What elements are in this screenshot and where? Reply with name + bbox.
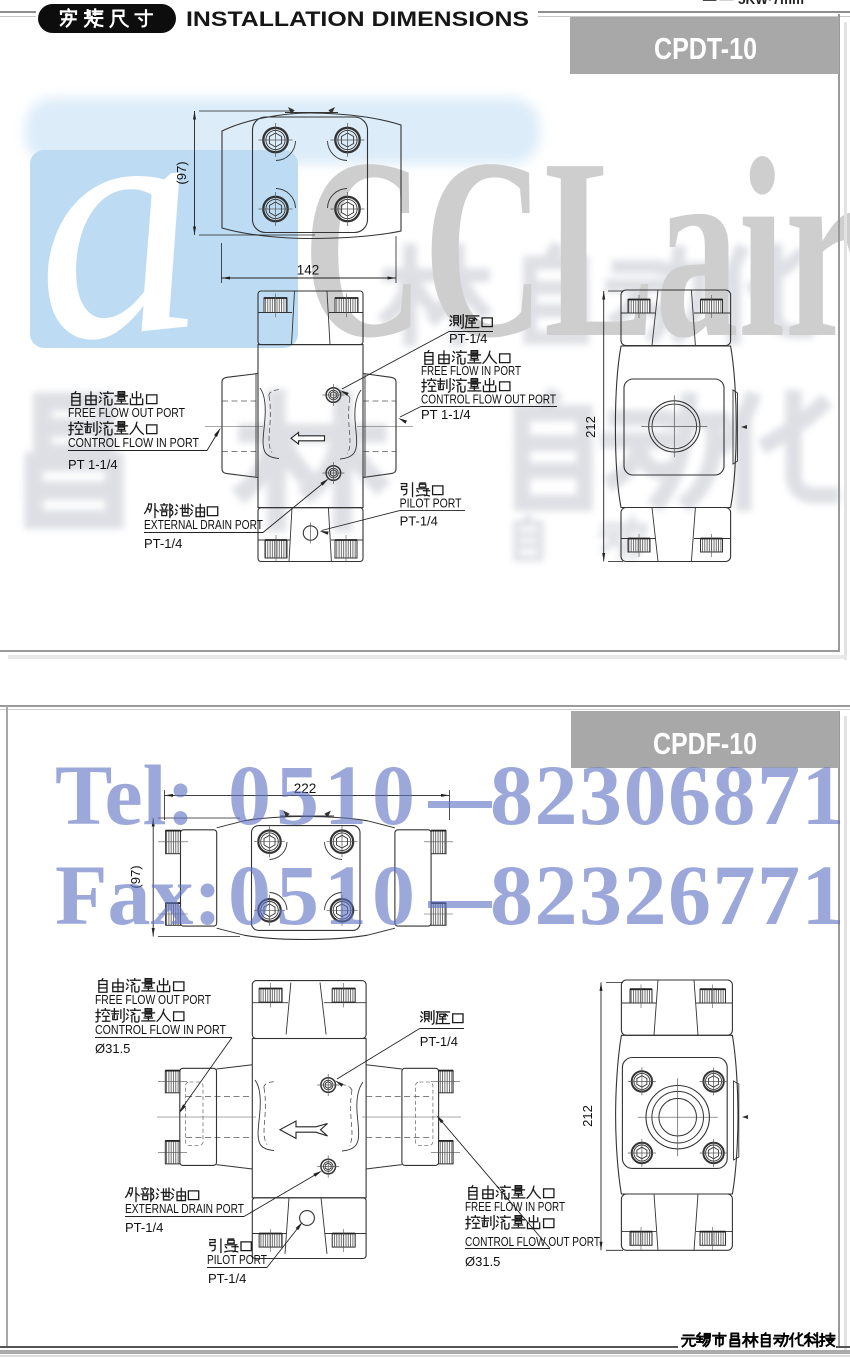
svg-text:212: 212 — [583, 416, 598, 438]
svg-text:PILOT PORT: PILOT PORT — [207, 1253, 267, 1267]
svg-text:PILOT PORT: PILOT PORT — [400, 497, 462, 511]
svg-text:PT-1/4: PT-1/4 — [449, 331, 487, 346]
svg-text:PT-1/4: PT-1/4 — [420, 1034, 458, 1049]
svg-text:PT 1-1/4: PT 1-1/4 — [68, 457, 118, 472]
svg-text:CONTROL FLOW OUT PORT: CONTROL FLOW OUT PORT — [465, 1235, 600, 1249]
svg-text:PT-1/4: PT-1/4 — [144, 536, 182, 551]
svg-text:EXTERNAL DRAIN PORT: EXTERNAL DRAIN PORT — [125, 1202, 244, 1216]
svg-text:82326771: 82326771 — [490, 847, 846, 943]
svg-text:FREE FLOW IN PORT: FREE FLOW IN PORT — [421, 364, 521, 378]
svg-text:FREE FLOW OUT PORT: FREE FLOW OUT PORT — [95, 993, 211, 1007]
svg-text:82306871: 82306871 — [490, 747, 846, 843]
svg-text:Fax:: Fax: — [55, 847, 222, 943]
svg-text:PT-1/4: PT-1/4 — [125, 1220, 163, 1235]
svg-text:FREE FLOW OUT PORT: FREE FLOW OUT PORT — [68, 406, 185, 420]
svg-text:0510: 0510 — [228, 747, 420, 843]
svg-text:CONTROL FLOW OUT PORT: CONTROL FLOW OUT PORT — [421, 393, 556, 407]
svg-text:CONTROL FLOW IN PORT: CONTROL FLOW IN PORT — [95, 1023, 226, 1037]
svg-text:PT-1/4: PT-1/4 — [400, 514, 438, 529]
svg-text:EXTERNAL DRAIN PORT: EXTERNAL DRAIN PORT — [144, 518, 263, 532]
svg-text:142: 142 — [297, 263, 320, 278]
svg-text:Ø31.5: Ø31.5 — [95, 1041, 130, 1056]
svg-text:Tel:: Tel: — [55, 747, 195, 843]
svg-text:PT-1/4: PT-1/4 — [208, 1271, 246, 1286]
svg-text:0510: 0510 — [228, 847, 420, 943]
svg-text:CONTROL FLOW IN PORT: CONTROL FLOW IN PORT — [68, 436, 199, 450]
svg-text:PT 1-1/4: PT 1-1/4 — [421, 407, 471, 422]
svg-text:Ø31.5: Ø31.5 — [465, 1254, 500, 1269]
svg-text:(97): (97) — [174, 161, 189, 184]
svg-text:212: 212 — [580, 1105, 595, 1127]
